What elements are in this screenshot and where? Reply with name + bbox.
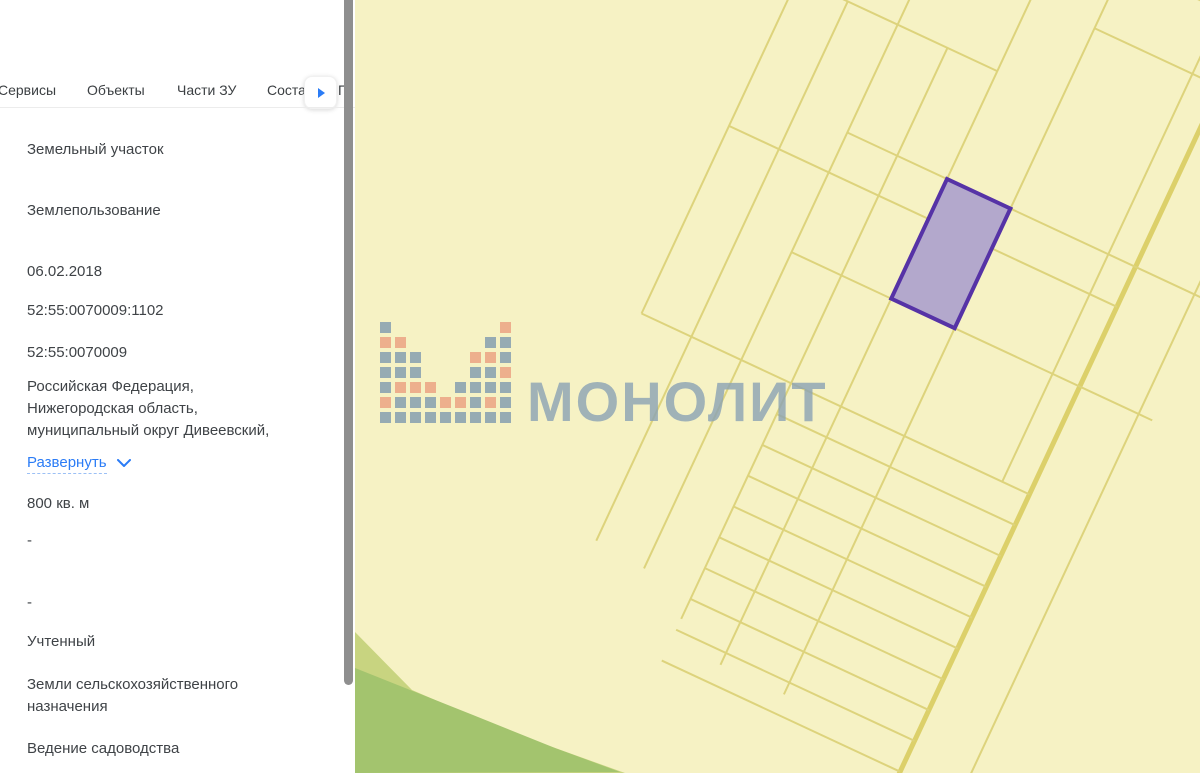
empty-value-2: -: [27, 592, 32, 614]
cadastral-quarter-value: 52:55:0070009: [27, 342, 127, 364]
panel-tabs: Сервисы Объекты Части ЗУ Соста Г: [0, 76, 355, 107]
land-category-line-1: Земли сельскохозяйственного: [27, 674, 238, 696]
permitted-use-value: Ведение садоводства: [27, 738, 179, 760]
map-svg: МОНОЛИТ: [355, 0, 1200, 773]
land-category-line-2: назначения: [27, 696, 108, 718]
expand-link[interactable]: Развернуть: [27, 453, 107, 474]
cadastral-number-value: 52:55:0070009:1102: [27, 300, 164, 322]
object-type-value: Земельный участок: [27, 139, 164, 161]
map-canvas[interactable]: МОНОЛИТ: [355, 0, 1200, 773]
next-tabs-button[interactable]: [304, 76, 337, 109]
status-value: Учтенный: [27, 631, 95, 653]
expand-address-control[interactable]: Развернуть: [27, 453, 131, 474]
app-window: МОНОЛИТ Сервисы Объекты Части ЗУ Соста Г…: [0, 0, 1200, 773]
chevron-right-icon: [318, 88, 325, 98]
address-line-3: муниципальный округ Дивеевский,: [27, 420, 269, 442]
attributes-panel: Сервисы Объекты Части ЗУ Соста Г Земельн…: [0, 0, 355, 773]
sidebar-scrollbar[interactable]: [344, 0, 353, 685]
address-line-2: Нижегородская область,: [27, 398, 198, 420]
address-line-1: Российская Федерация,: [27, 376, 194, 398]
empty-value-1: -: [27, 530, 32, 552]
tab-objects[interactable]: Объекты: [87, 82, 145, 98]
area-value: 800 кв. м: [27, 493, 89, 515]
tab-parts-zu[interactable]: Части ЗУ: [177, 82, 236, 98]
tab-sostav-truncated[interactable]: Соста: [267, 82, 306, 98]
tab-services[interactable]: Сервисы: [0, 82, 56, 98]
chevron-down-icon: [117, 459, 131, 468]
tabs-divider: [0, 107, 355, 108]
date-value: 06.02.2018: [27, 261, 102, 283]
watermark-text: МОНОЛИТ: [527, 370, 828, 433]
land-use-value: Землепользование: [27, 200, 161, 222]
